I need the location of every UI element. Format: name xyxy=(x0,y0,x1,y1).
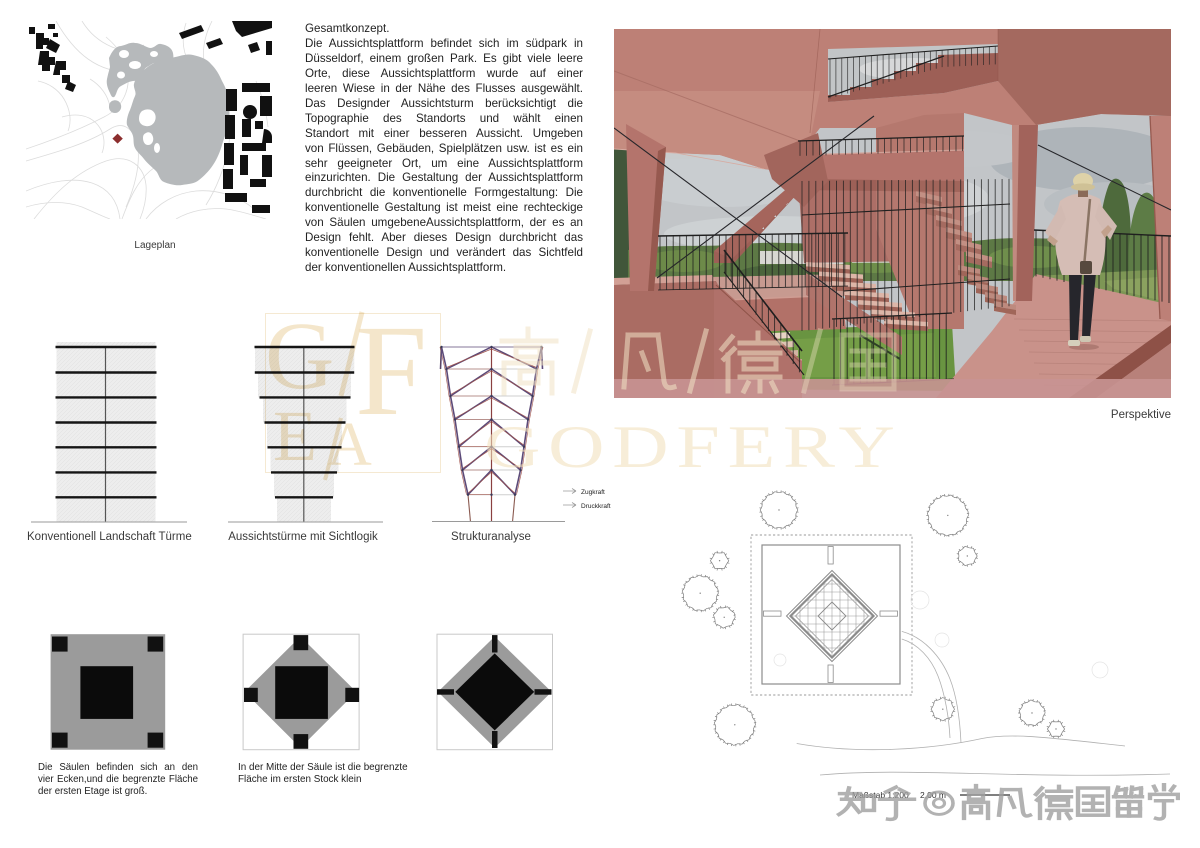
svg-text:E: E xyxy=(273,396,317,476)
svg-text:Zugkraft: Zugkraft xyxy=(581,489,605,496)
svg-text:A: A xyxy=(327,411,372,479)
svg-text:Druckkraft: Druckkraft xyxy=(581,503,611,510)
svg-text:G: G xyxy=(265,302,334,409)
